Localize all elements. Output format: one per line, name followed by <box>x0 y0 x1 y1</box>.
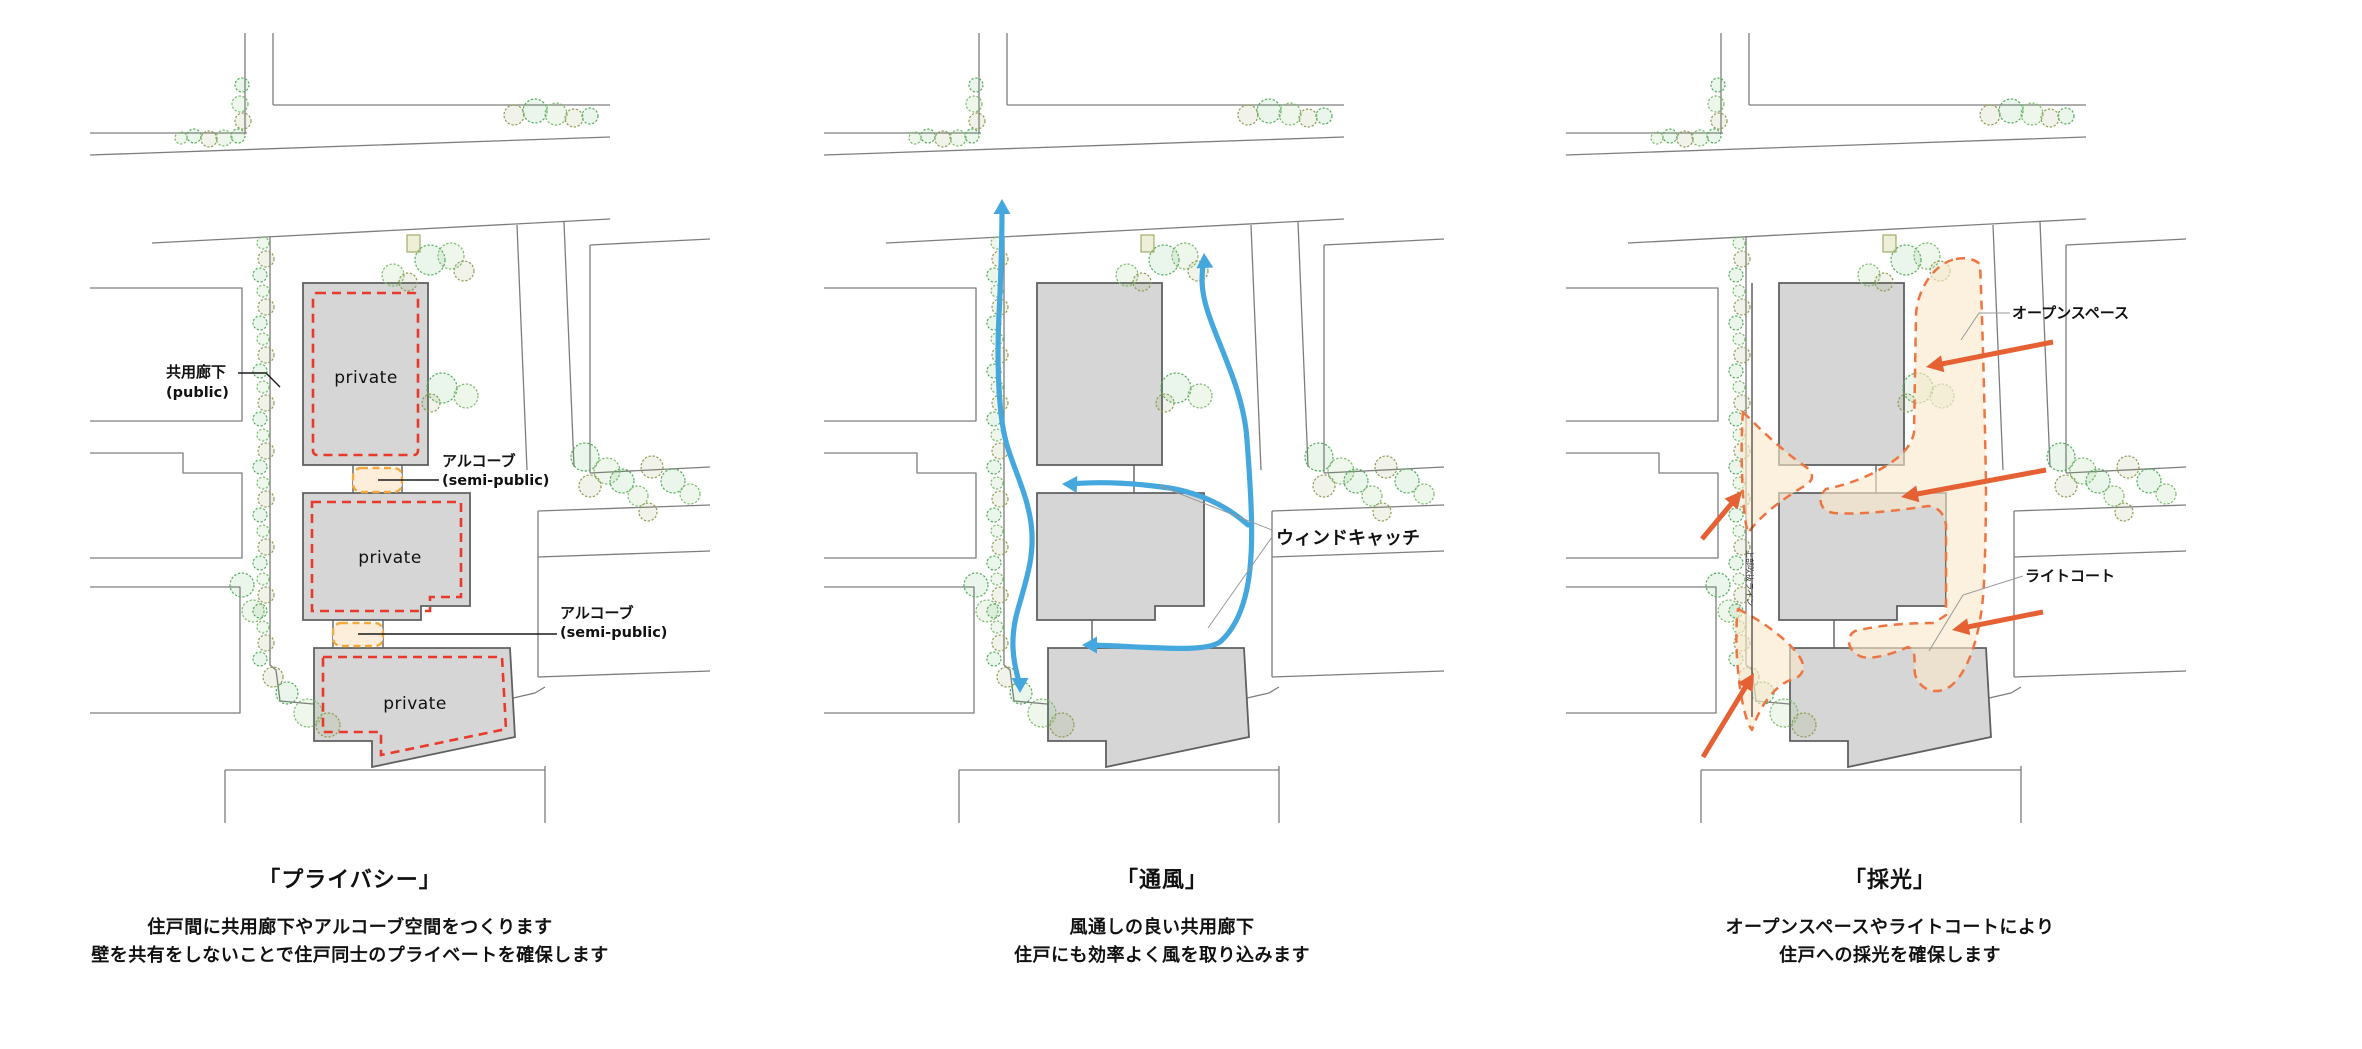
caption-privacy-line1: 住戸間に共用廊下やアルコーブ空間をつくります <box>91 914 608 942</box>
caption-daylight-line2: 住戸への採光を確保します <box>1725 942 2054 970</box>
caption-daylight-line1: オープンスペースやライトコートにより <box>1725 914 2054 942</box>
caption-ventilation-line1: 風通しの良い共用廊下 <box>1014 914 1310 942</box>
diagram-daylight: 上部吹抜ライン オープンスペース ライトコート <box>1566 25 2186 825</box>
caption-privacy-line2: 壁を共有をしないことで住戸同士のプライベートを確保します <box>91 942 608 970</box>
private-label-1: private <box>334 368 398 388</box>
caption-privacy-title: 「プライバシー」 <box>91 862 608 894</box>
corridor-label-jp: 共用廊下 <box>166 363 226 381</box>
site-plan-base <box>1566 33 2186 823</box>
private-label-3: private <box>383 694 447 714</box>
diagram-ventilation: ウィンドキャッチ <box>824 25 1444 825</box>
void-line-label: 上部吹抜ライン <box>1745 550 1755 606</box>
windcatch-label: ウィンドキャッチ <box>1276 528 1420 549</box>
lightcourt-label: ライトコート <box>2025 567 2115 585</box>
alcove2-label-jp: アルコーブ <box>560 604 634 622</box>
caption-ventilation: 「通風」 風通しの良い共用廊下 住戸にも効率よく風を取り込みます <box>1014 862 1310 970</box>
alcove1-label-jp: アルコーブ <box>442 452 516 470</box>
caption-daylight: 「採光」 オープンスペースやライトコートにより 住戸への採光を確保します <box>1725 862 2054 970</box>
corridor-label-en: (public) <box>166 385 229 401</box>
site-plan-base <box>824 33 1444 823</box>
caption-ventilation-line2: 住戸にも効率よく風を取り込みます <box>1014 942 1310 970</box>
alcove2-label-en: (semi-public) <box>560 625 667 641</box>
openspace-label: オープンスペース <box>2012 304 2129 322</box>
caption-privacy: 「プライバシー」 住戸間に共用廊下やアルコーブ空間をつくります 壁を共有をしない… <box>91 862 608 970</box>
private-label-2: private <box>358 548 422 568</box>
caption-daylight-title: 「採光」 <box>1725 862 2054 894</box>
alcove1-label-en: (semi-public) <box>442 473 549 489</box>
diagram-privacy: private private private 共用廊下 (public) アル… <box>90 25 710 825</box>
caption-ventilation-title: 「通風」 <box>1014 862 1310 894</box>
